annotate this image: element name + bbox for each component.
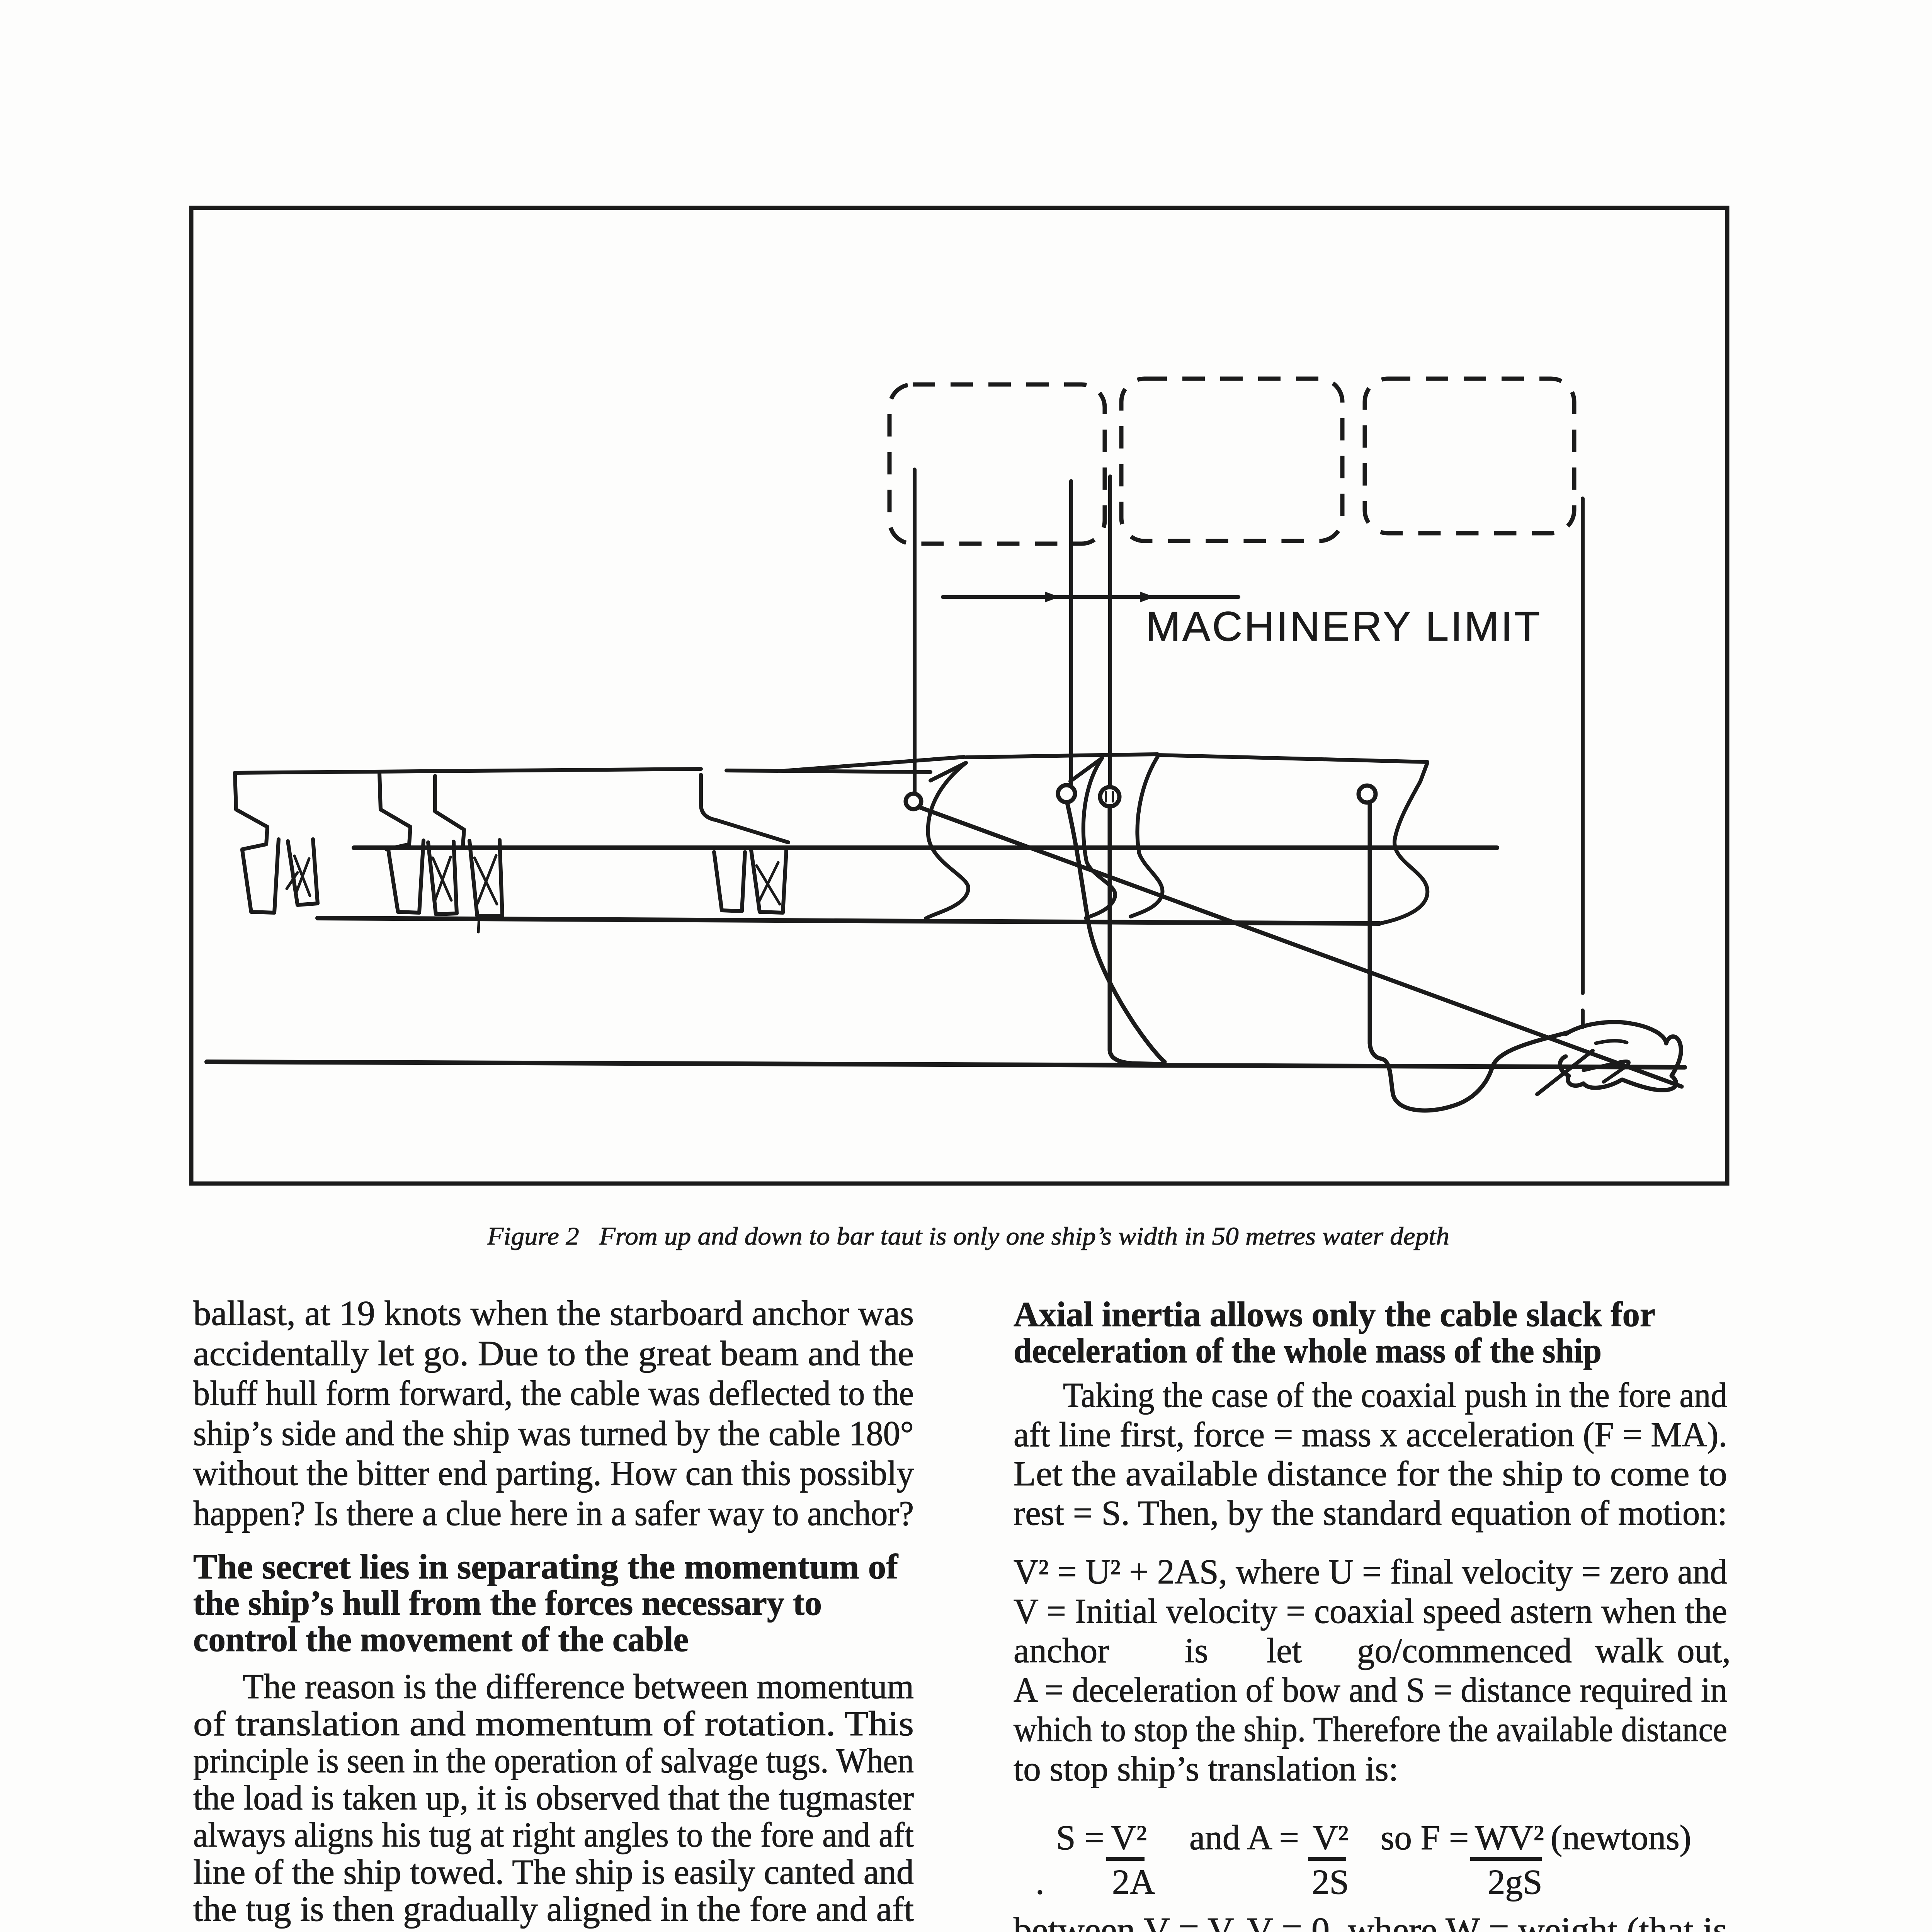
svg-text:line. This effect is well know: line. This effect is well known. It avoi… — [193, 1927, 914, 1932]
svg-text:rest = S. Then, by the standar: rest = S. Then, by the standard equation… — [1014, 1493, 1727, 1532]
svg-text:the tug is then gradually alig: the tug is then gradually aligned in the… — [193, 1889, 914, 1929]
svg-text:bluff hull form forward, the c: bluff hull form forward, the cable was d… — [193, 1374, 914, 1413]
svg-text:Axial inertia allows only the: Axial inertia allows only the cable slac… — [1014, 1295, 1655, 1334]
svg-text:accidentally let go. Due to th: accidentally let go. Due to the great be… — [193, 1334, 914, 1373]
svg-text:which to stop the ship. Theref: which to stop the ship. Therefore the av… — [1014, 1710, 1727, 1749]
svg-text:of translation and momentum of: of translation and momentum of rotation.… — [193, 1704, 914, 1743]
svg-text:Figure 2 From up and down to: Figure 2 From up and down to bar taut is… — [487, 1222, 1449, 1250]
svg-text:between V = V, V = 0, where W: between V = V, V = 0, where W = weight (… — [1014, 1910, 1727, 1932]
svg-text:principle is seen in the opera: principle is seen in the operation of sa… — [193, 1741, 914, 1780]
svg-text:without the bitter end parting: without the bitter end parting. How can … — [193, 1454, 914, 1493]
svg-text:V² = U² + 2AS, where U = final: V² = U² + 2AS, where U = final velocity … — [1014, 1552, 1727, 1591]
svg-text:The reason is the difference b: The reason is the difference between mom… — [243, 1667, 914, 1706]
svg-text:ballast, at 19 knots when the: ballast, at 19 knots when the starboard … — [193, 1294, 914, 1333]
svg-text:S =V²and A =V²so F =WV²(newton: S =V²and A =V²so F =WV²(newtons) — [1056, 1818, 1691, 1857]
svg-text:deceleration of the whole mass: deceleration of the whole mass of the sh… — [1014, 1331, 1602, 1370]
svg-text:A = deceleration of bow and S: A = deceleration of bow and S = distance… — [1014, 1670, 1727, 1709]
svg-text:Let the available distance for: Let the available distance for the ship … — [1014, 1454, 1727, 1493]
svg-text:anchorisletgo/commencedwalkout: anchorisletgo/commencedwalkout, — [1014, 1631, 1731, 1670]
svg-text:the load is taken up, it is ob: the load is taken up, it is observed tha… — [193, 1778, 914, 1817]
svg-text:the ship’s hull from the force: the ship’s hull from the forces necessar… — [193, 1583, 822, 1622]
svg-text:control the movement of the ca: control the movement of the cable — [193, 1620, 689, 1659]
svg-text:to stop ship’s translation is:: to stop ship’s translation is: — [1014, 1749, 1398, 1788]
svg-text:.2A2S2gS: .2A2S2gS — [1036, 1862, 1543, 1901]
svg-text:V = Initial velocity = coaxial: V = Initial velocity = coaxial speed ast… — [1014, 1592, 1727, 1631]
svg-text:MACHINERY LIMIT: MACHINERY LIMIT — [1146, 603, 1542, 650]
svg-text:Taking the case of the coaxial: Taking the case of the coaxial push in t… — [1063, 1376, 1727, 1415]
svg-text:The secret lies in separating: The secret lies in separating the moment… — [193, 1547, 899, 1586]
svg-text:always aligns his tug at right: always aligns his tug at right angles to… — [193, 1815, 914, 1854]
svg-text:aft line first, force = mass x: aft line first, force = mass x accelerat… — [1014, 1415, 1727, 1454]
svg-text:ship’s side and the ship was t: ship’s side and the ship was turned by t… — [193, 1414, 914, 1453]
svg-text:happen? Is there a clue here i: happen? Is there a clue here in a safer … — [193, 1494, 914, 1533]
svg-text:line of the ship towed. The sh: line of the ship towed. The ship is easi… — [193, 1852, 914, 1891]
